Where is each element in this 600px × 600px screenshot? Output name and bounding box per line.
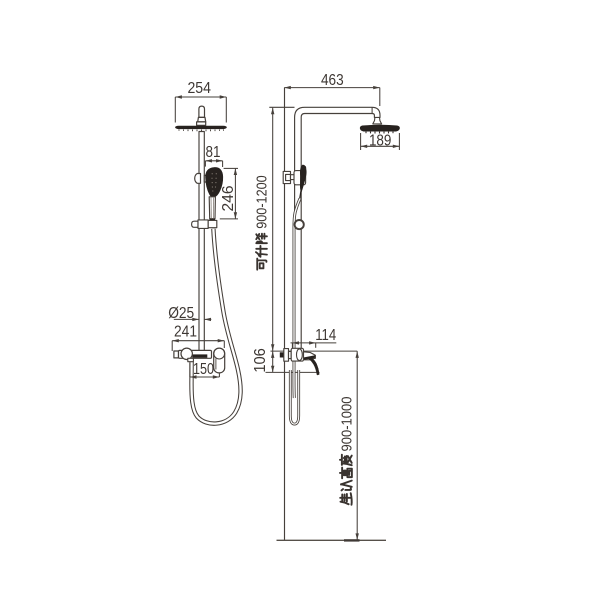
svg-text:254: 254 — [187, 80, 211, 97]
svg-text:241: 241 — [174, 323, 197, 340]
svg-text:114: 114 — [315, 327, 336, 344]
svg-text:900-1200: 900-1200 — [254, 175, 271, 229]
svg-text:81: 81 — [206, 144, 221, 161]
svg-text:463: 463 — [321, 72, 344, 89]
svg-text:150: 150 — [193, 361, 214, 378]
svg-text:246: 246 — [220, 185, 237, 211]
svg-text:189: 189 — [369, 133, 392, 150]
svg-text:900-1000: 900-1000 — [339, 397, 356, 452]
svg-text:106: 106 — [252, 348, 269, 373]
